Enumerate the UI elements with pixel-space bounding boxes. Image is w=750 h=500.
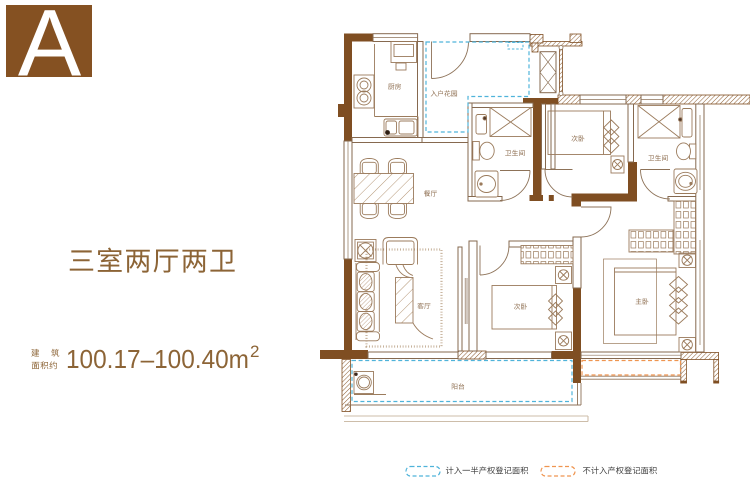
svg-text:2: 2	[250, 342, 259, 361]
svg-text:100.17–100.40m: 100.17–100.40m	[66, 344, 249, 374]
svg-text:A: A	[18, 0, 82, 97]
